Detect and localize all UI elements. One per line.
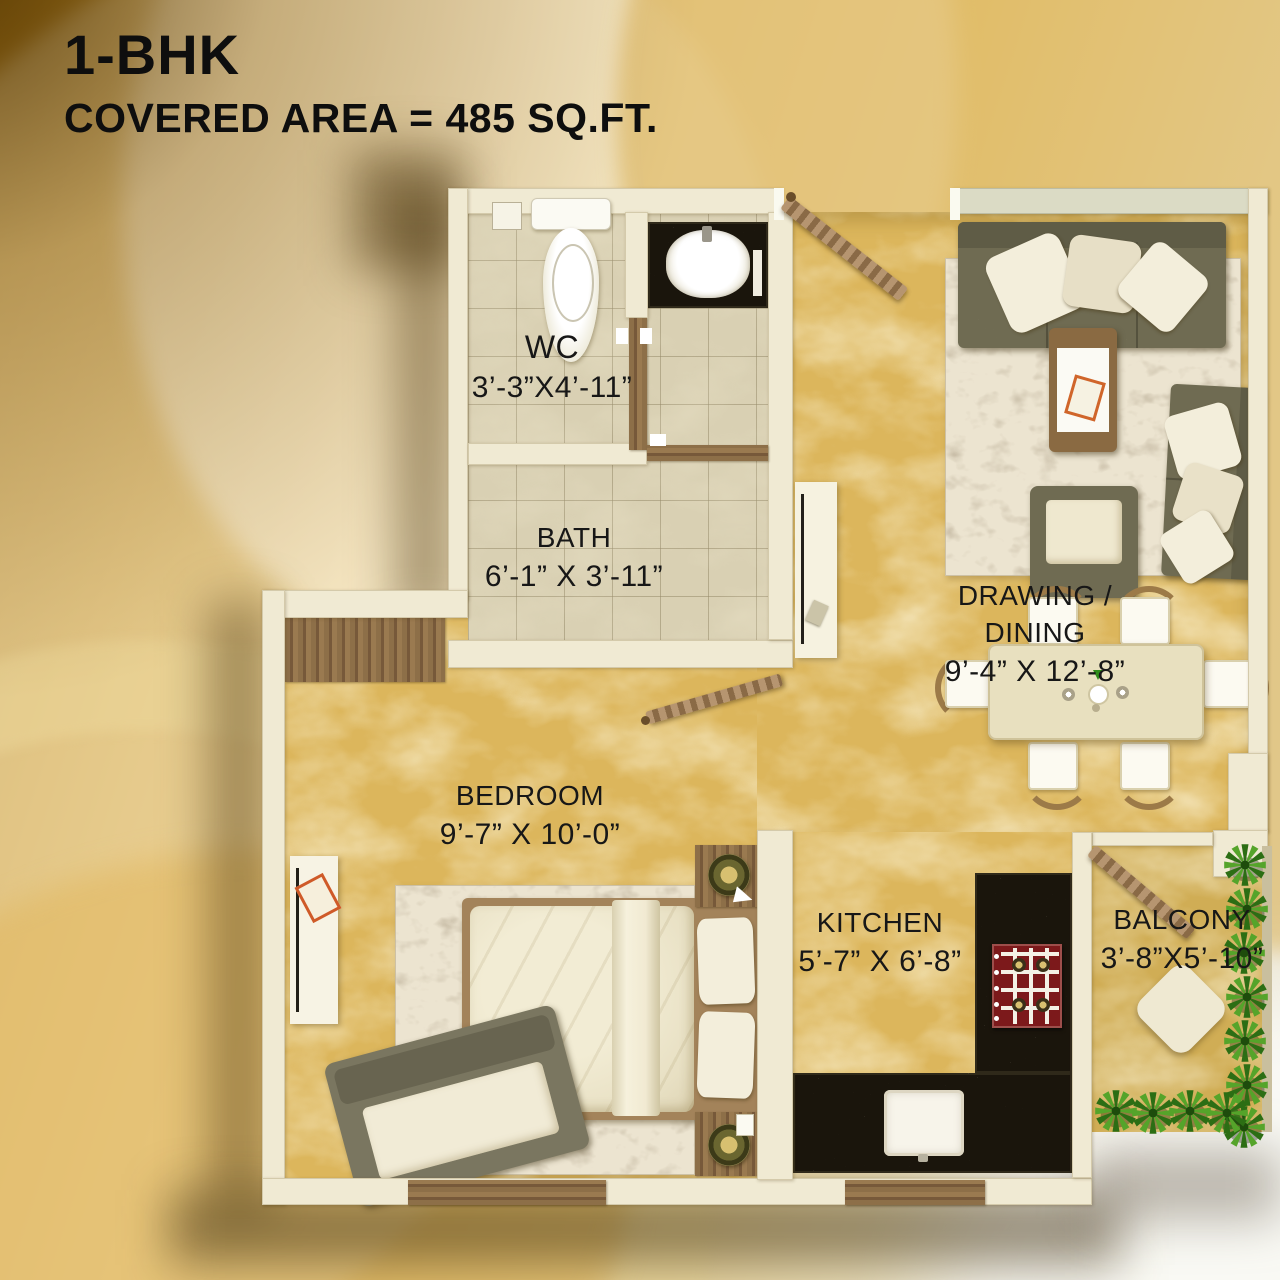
kitchen-window [845, 1180, 985, 1205]
toilet-tank [531, 198, 611, 230]
plan-type-title: 1-BHK [64, 22, 658, 87]
stored-door-panel [795, 482, 837, 658]
toilet-paper-holder [492, 202, 522, 230]
stove-knob [994, 1016, 999, 1021]
plan-shadow [1090, 1150, 1280, 1220]
coffee-table [1049, 328, 1117, 452]
table-rosette [1092, 704, 1100, 712]
soap-tray [753, 250, 762, 296]
wc-door-stop [640, 328, 652, 344]
room-label-drawing-dining: DRAWING / DINING 9’-4” X 12’-8” [913, 578, 1158, 692]
room-label-bath: BATH 6’-1” X 3’-11” [485, 520, 663, 597]
room-name: BALCONY [1101, 902, 1264, 939]
armchair-cushion [1046, 500, 1122, 564]
stove-burner [1012, 998, 1026, 1012]
room-name: KITCHEN [798, 905, 961, 942]
entrance-door-frame [950, 188, 960, 220]
stove-knob [994, 1002, 999, 1007]
wall-top-right [952, 188, 1268, 214]
bath-door-stop [650, 434, 666, 446]
bedroom-console [290, 856, 338, 1024]
toilet-seat-ring [552, 244, 594, 322]
wall-left-lower [262, 590, 285, 1205]
wall-bedroom-top [262, 590, 468, 618]
wall-wc-partition [625, 212, 648, 318]
bed-pillow [697, 917, 756, 1005]
plan-shadow [208, 600, 270, 1210]
sink-tap [918, 1154, 928, 1162]
room-label-balcony: BALCONY 3’-8”X5’-10” [1101, 902, 1264, 979]
bedroom-door-hinge [641, 716, 650, 725]
kitchen-sink [884, 1090, 964, 1156]
wall-bath-bottom [448, 640, 793, 668]
floor-plan-poster: 1-BHK COVERED AREA = 485 SQ.FT. [0, 0, 1280, 1280]
wall-bath-right [768, 212, 793, 640]
stove-burner [1012, 958, 1026, 972]
room-name: WC [472, 326, 633, 368]
door-panel-groove [801, 494, 804, 644]
room-label-kitchen: KITCHEN 5’-7” X 6’-8” [798, 905, 961, 982]
dining-chair [1028, 742, 1078, 790]
table-lamp [708, 854, 750, 896]
room-dims: 9’-7” X 10’-0” [440, 815, 620, 855]
bed-runner-blanket [612, 900, 660, 1116]
covered-area-title: COVERED AREA = 485 SQ.FT. [64, 95, 658, 142]
room-label-bedroom: BEDROOM 9’-7” X 10’-0” [440, 778, 620, 855]
console-book [294, 873, 341, 923]
stove-knob [994, 954, 999, 959]
room-name: BATH [485, 520, 663, 557]
wall-wc-bottom [468, 443, 647, 465]
wall-pillar-drawing [1228, 753, 1268, 832]
stove-burner [1036, 998, 1050, 1012]
room-dims: 6’-1” X 3’-11” [485, 557, 663, 597]
plan-shadow [396, 190, 454, 620]
door-panel-latch [805, 600, 829, 627]
wall-left-upper [448, 188, 468, 600]
room-label-wc: WC 3’-3”X4’-11” [472, 326, 633, 408]
stove-knob [994, 970, 999, 975]
stove-grill [1001, 948, 1059, 1024]
wall-bedroom-kitchen [757, 830, 793, 1180]
gas-stove [992, 944, 1062, 1028]
main-door-hinge [786, 192, 796, 202]
basin-faucet [702, 226, 712, 242]
room-dims: 9’-4” X 12’-8” [913, 652, 1158, 692]
dining-chair [1203, 660, 1253, 708]
poster-title: 1-BHK COVERED AREA = 485 SQ.FT. [64, 22, 658, 142]
room-name: BEDROOM [440, 778, 620, 815]
nightstand-phone [736, 1114, 754, 1136]
room-dims: 3’-8”X5’-10” [1101, 939, 1264, 979]
bedroom-window [408, 1180, 606, 1205]
room-name: DRAWING / DINING [913, 578, 1158, 652]
room-dims: 5’-7” X 6’-8” [798, 942, 961, 982]
wardrobe [285, 612, 445, 682]
balcony-plants [1085, 838, 1280, 1158]
room-dims: 3’-3”X4’-11” [472, 368, 633, 408]
stove-burner [1036, 958, 1050, 972]
dining-chair [1120, 742, 1170, 790]
bed-pillow [697, 1011, 756, 1099]
stove-knob [994, 986, 999, 991]
bath-door-track [647, 445, 768, 461]
wall-right [1248, 188, 1268, 832]
